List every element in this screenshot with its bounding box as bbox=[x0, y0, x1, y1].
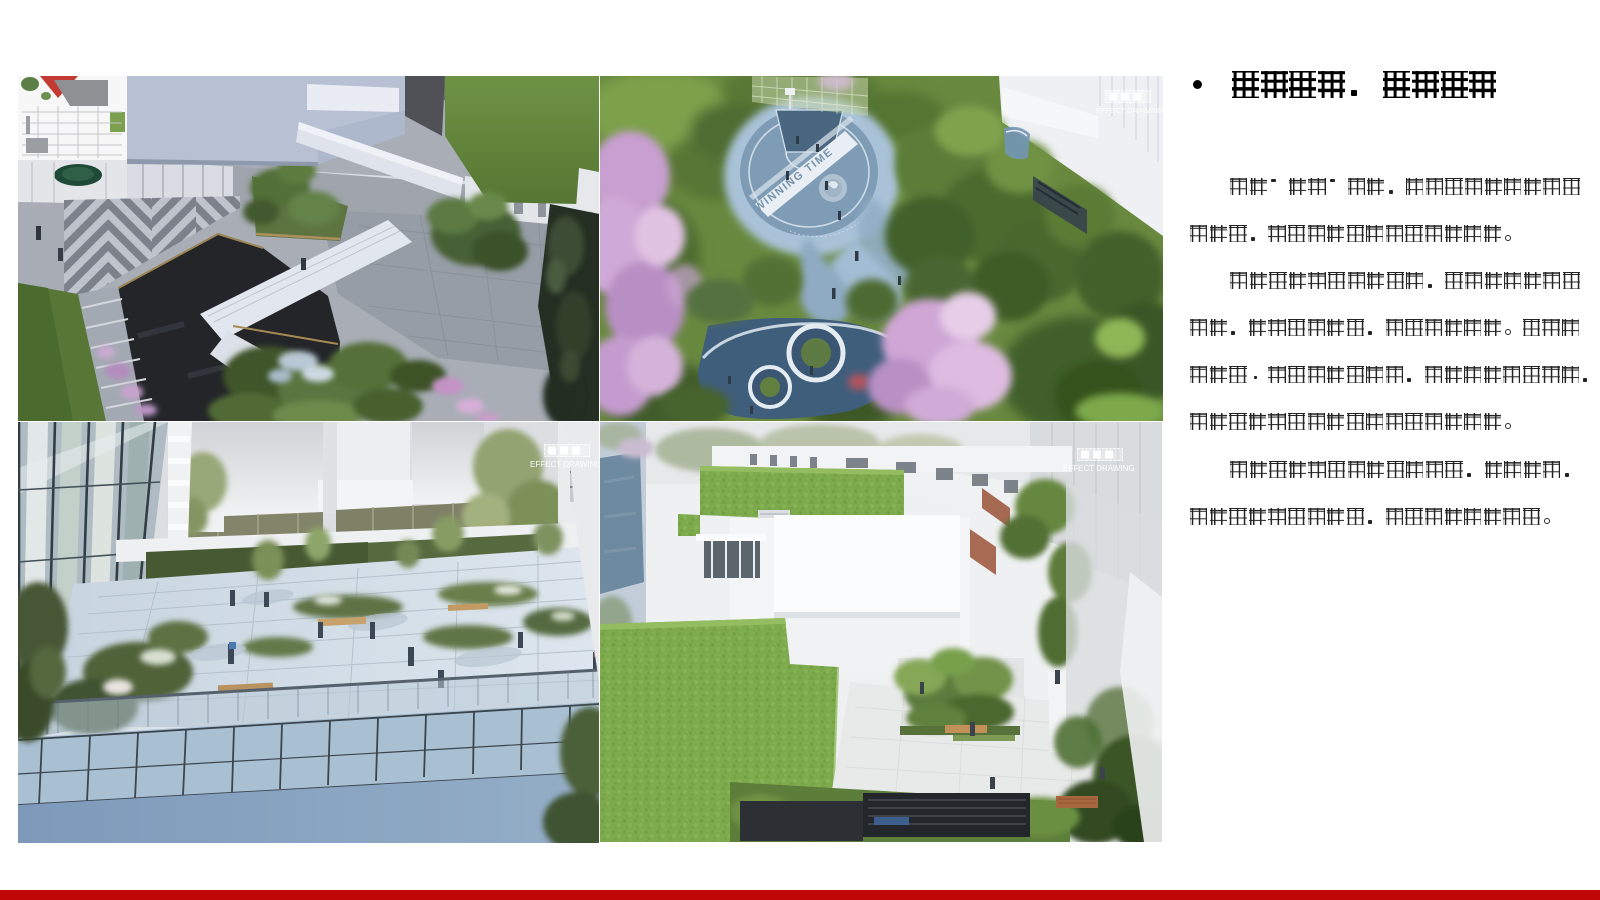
svg-text:EFFECT DRAWING: EFFECT DRAWING bbox=[1063, 464, 1135, 473]
svg-text:EFFECT DRAWING: EFFECT DRAWING bbox=[530, 460, 599, 469]
svg-text:EFFECT DRAWING: EFFECT DRAWING bbox=[1096, 106, 1163, 115]
